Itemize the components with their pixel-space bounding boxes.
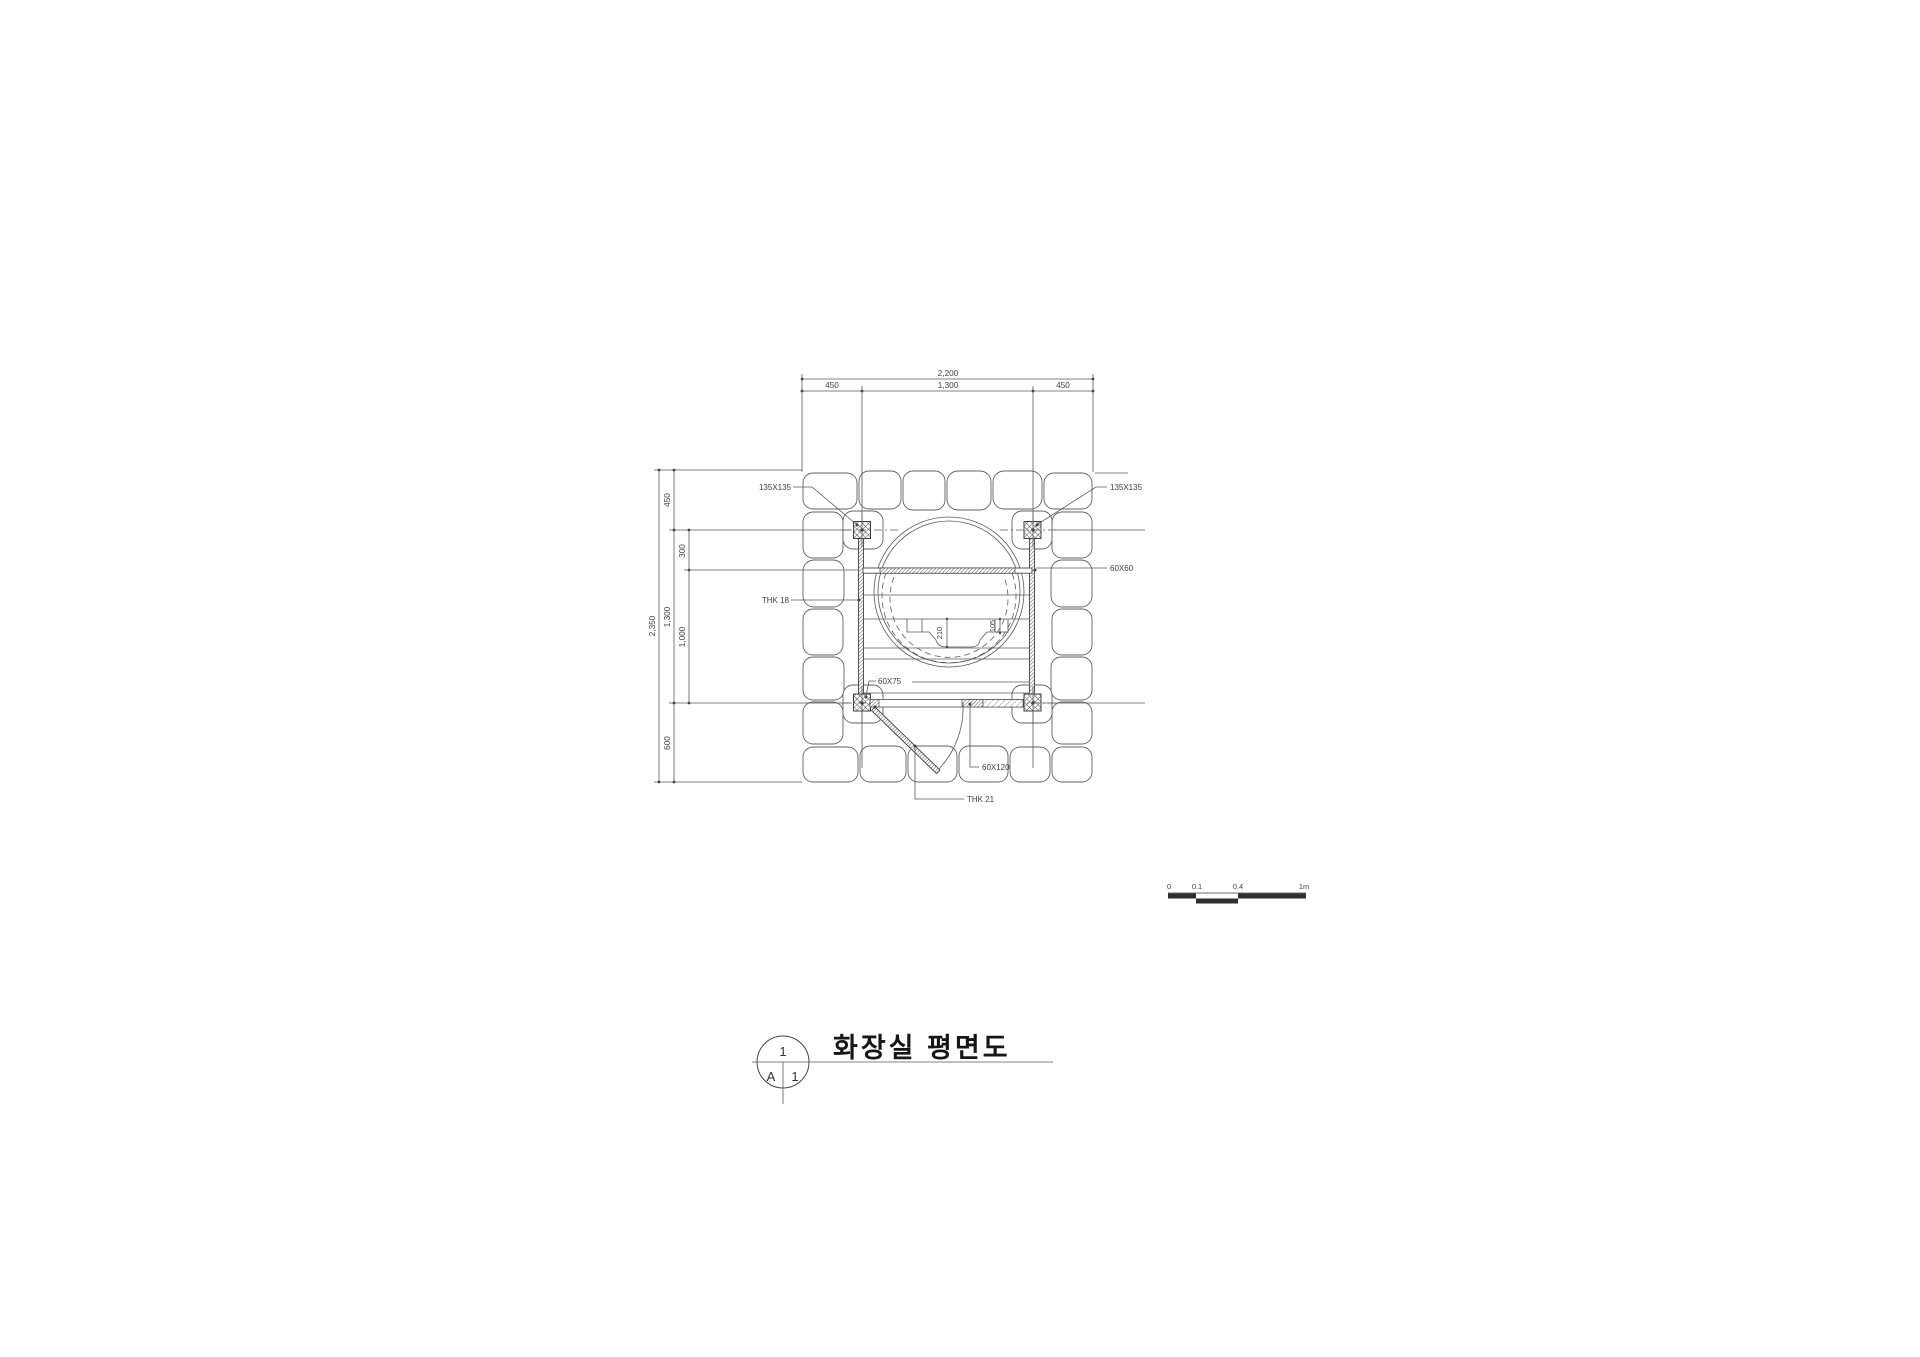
scale-bar: 0 0.1 0.4 1m [1167, 882, 1309, 904]
dim-pit-depth: 210 [935, 627, 944, 639]
dim-left-inner-top: 300 [678, 544, 687, 558]
toilet-floor-plan-canvas: 2,200 450 1,300 450 2,350 450 1,300 600 … [0, 0, 1920, 1357]
label-post-right: 135X135 [1110, 483, 1143, 492]
callout-number: 1 [779, 1044, 786, 1059]
drawing-sheet: 2,200 450 1,300 450 2,350 450 1,300 600 … [0, 0, 1920, 1357]
wall-right [1030, 538, 1035, 694]
dim-left-inner-bottom: 1,000 [678, 626, 687, 647]
pit-rim-inner [878, 521, 1020, 663]
label-joist: 60X75 [878, 677, 902, 686]
label-threshold: 60X120 [982, 763, 1010, 772]
scale-tick-1m: 1m [1299, 882, 1309, 891]
threshold [870, 700, 1023, 708]
label-wall-thk: THK 18 [762, 596, 790, 605]
dim-top-right: 450 [1056, 381, 1070, 390]
door-frame-60x120 [962, 700, 983, 708]
scale-tick-01: 0.1 [1192, 882, 1202, 891]
dim-left-top: 450 [663, 493, 672, 507]
dim-top-total: 2,200 [938, 369, 959, 378]
drawing-title: 화장실 평면도 [833, 1033, 1011, 1063]
dim-left-middle: 1,300 [663, 606, 672, 627]
callout-grid-row: 1 [791, 1069, 798, 1084]
dim-step-offset: 105 [988, 620, 997, 632]
scale-tick-0: 0 [1167, 882, 1171, 891]
scale-tick-04: 0.4 [1233, 882, 1243, 891]
dim-left-bottom: 600 [663, 736, 672, 750]
title-callout: 1 A 1 화장실 평면도 [752, 1033, 1053, 1104]
pit-hidden-inner [890, 577, 1008, 657]
callout-grid-col: A [767, 1069, 776, 1084]
interior-floor: 210 105 [864, 517, 1029, 693]
center-dimensions: 210 105 [935, 618, 1001, 648]
label-beam: 60X60 [1110, 564, 1134, 573]
wall-left [859, 538, 864, 694]
dim-top-left: 450 [825, 381, 839, 390]
pit-rim-outer [874, 517, 1024, 667]
label-door-thk: THK 21 [967, 795, 995, 804]
beam-60x60 [863, 568, 1032, 573]
pit-hidden-outer [882, 573, 1016, 663]
label-post-left: 135X135 [759, 483, 792, 492]
post-footings [843, 511, 1052, 723]
door-hinge [873, 705, 876, 708]
dim-left-total: 2,350 [648, 615, 657, 636]
dim-top-center: 1,300 [938, 381, 959, 390]
